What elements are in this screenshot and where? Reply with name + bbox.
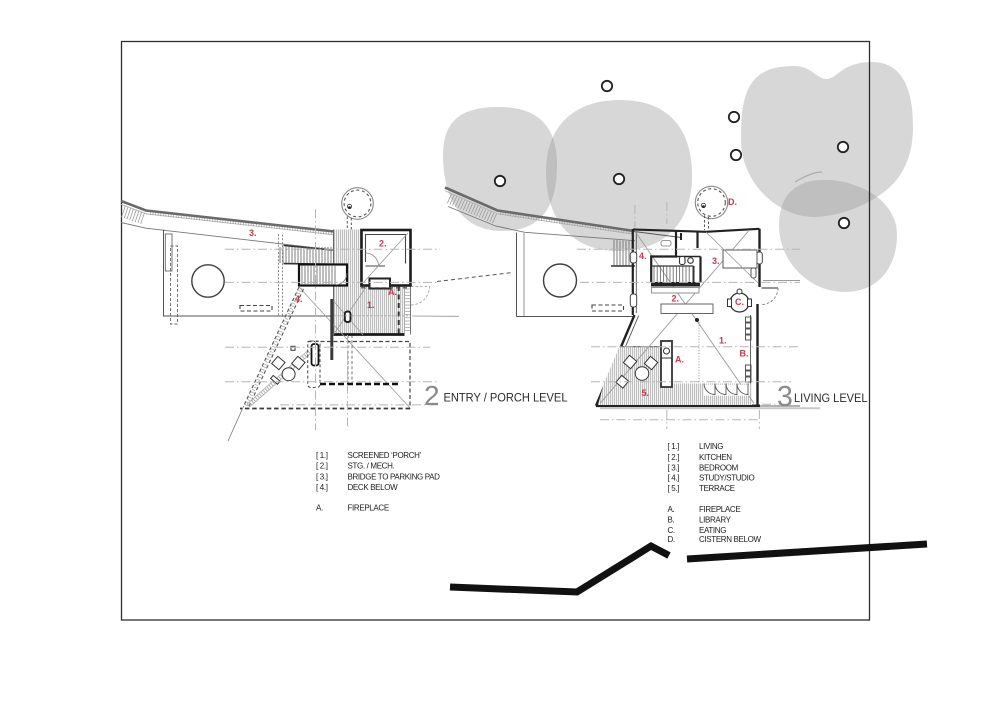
svg-text:BRIDGE TO PARKING PAD: BRIDGE TO PARKING PAD <box>348 472 441 481</box>
svg-text:A.: A. <box>668 505 675 514</box>
svg-text:1.: 1. <box>719 336 727 346</box>
svg-text:FIREPLACE: FIREPLACE <box>699 505 740 514</box>
svg-text:1.: 1. <box>367 300 375 310</box>
svg-text:3.: 3. <box>712 256 720 266</box>
svg-text:TERRACE: TERRACE <box>699 484 735 493</box>
svg-text:5.: 5. <box>642 388 650 398</box>
svg-text:CISTERN BELOW: CISTERN BELOW <box>699 535 761 544</box>
svg-text:BEDROOM: BEDROOM <box>699 463 739 472</box>
svg-text:KITCHEN: KITCHEN <box>699 453 732 462</box>
svg-text:DECK BELOW: DECK BELOW <box>348 483 399 492</box>
svg-text:4.: 4. <box>295 294 303 304</box>
svg-text:A.: A. <box>675 355 684 365</box>
svg-text:[ 5.]: [ 5.] <box>668 484 680 493</box>
svg-text:3: 3 <box>777 381 793 413</box>
svg-text:3.: 3. <box>249 228 257 238</box>
svg-text:C.: C. <box>668 526 675 535</box>
svg-text:[ 2.]: [ 2.] <box>668 453 680 462</box>
svg-text:A.: A. <box>316 504 323 513</box>
svg-text:D.: D. <box>728 197 737 207</box>
svg-text:ENTRY / PORCH LEVEL: ENTRY / PORCH LEVEL <box>444 393 569 405</box>
svg-text:[ 3.]: [ 3.] <box>316 472 328 481</box>
svg-text:B.: B. <box>740 349 749 359</box>
svg-text:LIVING: LIVING <box>699 442 723 451</box>
svg-text:LIBRARY: LIBRARY <box>699 515 732 524</box>
svg-text:2.: 2. <box>672 294 680 304</box>
svg-text:STG. / MECH.: STG. / MECH. <box>348 462 395 471</box>
svg-text:[ 1.]: [ 1.] <box>668 442 680 451</box>
svg-text:[ 4.]: [ 4.] <box>316 483 328 492</box>
svg-text:FIREPLACE: FIREPLACE <box>348 504 389 513</box>
svg-text:A.: A. <box>388 287 397 297</box>
svg-text:4.: 4. <box>639 251 647 261</box>
svg-text:[ 3.]: [ 3.] <box>668 463 680 472</box>
svg-text:EATING: EATING <box>699 526 726 535</box>
svg-text:[ 1.]: [ 1.] <box>316 451 328 460</box>
svg-text:2: 2 <box>424 380 440 411</box>
svg-text:C.: C. <box>735 297 744 307</box>
svg-text:[ 4.]: [ 4.] <box>668 473 680 482</box>
svg-text:2.: 2. <box>379 239 387 249</box>
svg-text:[ 2.]: [ 2.] <box>316 462 328 471</box>
svg-text:LIVING LEVEL: LIVING LEVEL <box>794 393 868 405</box>
svg-text:D.: D. <box>668 535 675 544</box>
svg-text:SCREENED ‘PORCH’: SCREENED ‘PORCH’ <box>348 451 422 460</box>
svg-text:STUDY/STUDIO: STUDY/STUDIO <box>699 473 754 482</box>
svg-text:B.: B. <box>668 515 675 524</box>
